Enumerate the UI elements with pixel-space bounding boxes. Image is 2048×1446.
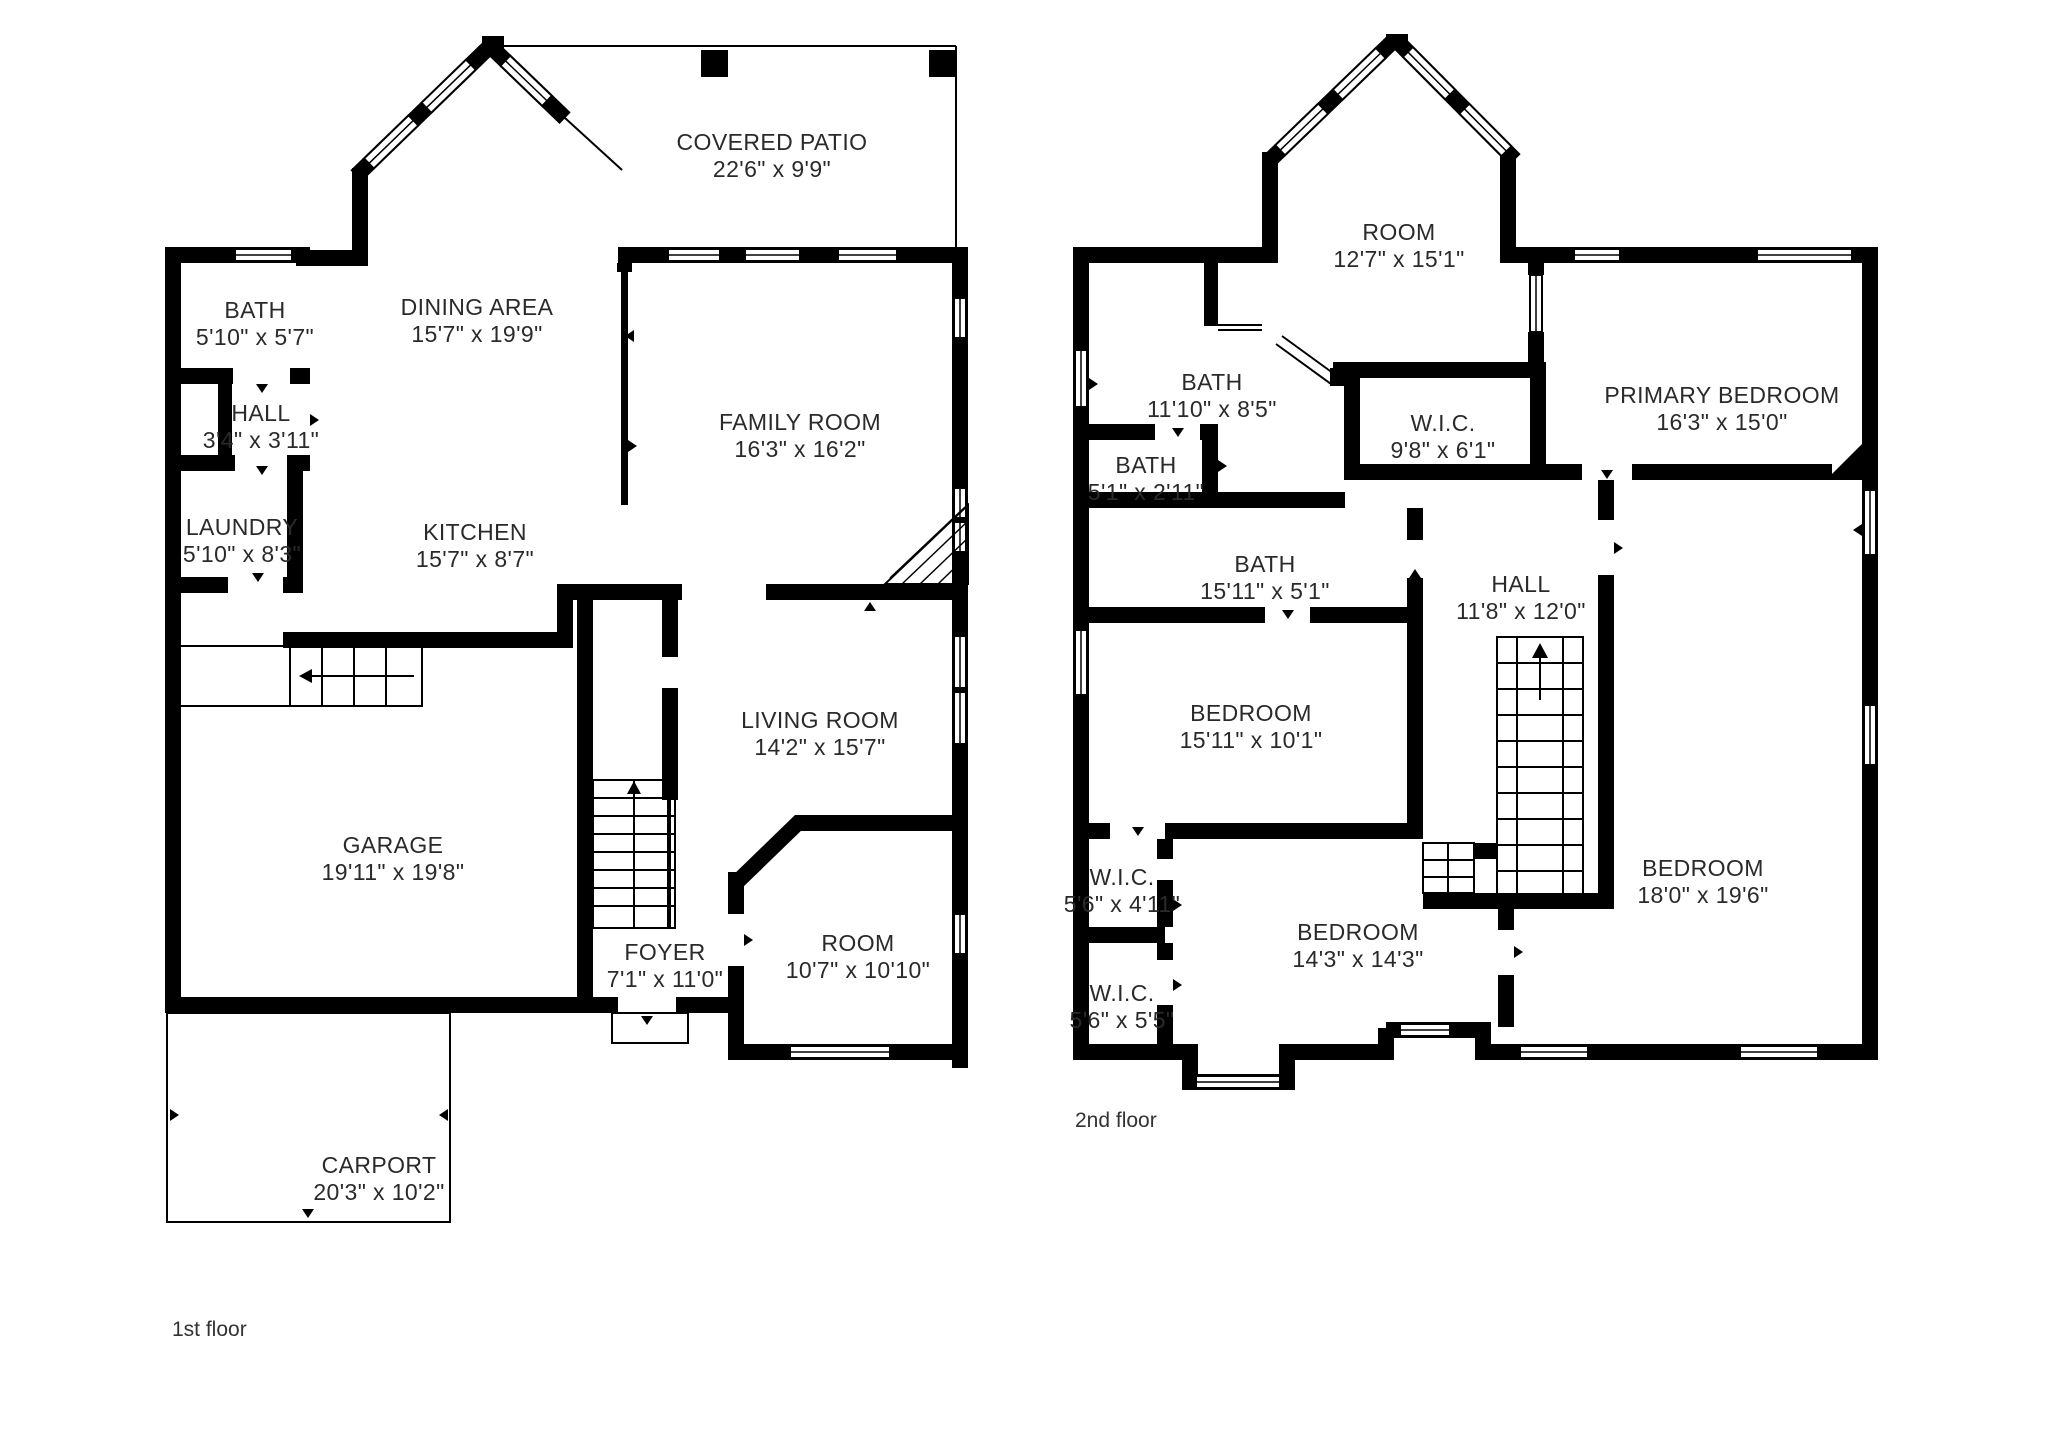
room-label-bedroom-2-name: BEDROOM [1297,919,1419,945]
stairs-second-floor [1423,637,1583,905]
room-label-living-room-name: LIVING ROOM [741,707,899,733]
room-label-family-room-name: FAMILY ROOM [719,409,881,435]
floor-caption-first: 1st floor [172,1318,247,1341]
floor-plan-first: 1st floor BATH5'10" x 5'7"HALL3'4" x 3'1… [165,36,968,1341]
door-ticks-first [170,330,876,1218]
room-label-foyer-name: FOYER [624,939,705,965]
bay-window-dining [350,36,570,182]
room-label-bedroom-3-name: BEDROOM [1642,855,1764,881]
stairs-first-floor [593,780,675,928]
room-label-bedroom-1-dims: 15'11" x 10'1" [1180,727,1323,753]
room-label-kitchen-dims: 15'7" x 8'7" [416,546,534,572]
room-label-dining-area-dims: 15'7" x 19'9" [411,321,542,347]
room-label-kitchen-name: KITCHEN [423,519,527,545]
room-labels-second: ROOM12'7" x 15'1"BATH11'10" x 8'5"BATH5'… [1064,219,1840,1033]
room-label-wic-3-name: W.I.C. [1089,980,1154,1006]
room-label-dining-area-name: DINING AREA [401,294,554,320]
room-label-garage-name: GARAGE [343,832,444,858]
room-label-bath-2-name: BATH [1181,369,1242,395]
room-label-hall-1-dims: 3'4" x 3'11" [203,427,319,453]
room-label-hall-2-dims: 11'8" x 12'0" [1456,598,1586,624]
room-label-foyer-dims: 7'1" x 11'0" [607,966,723,992]
room-label-wic-2-dims: 5'6" x 4'11" [1064,891,1180,917]
room-label-bath-2-dims: 11'10" x 8'5" [1147,396,1277,422]
room-label-wic-1-dims: 9'8" x 6'1" [1391,437,1496,463]
room-label-room-1-name: ROOM [821,930,894,956]
room-label-room-2-dims: 12'7" x 15'1" [1333,246,1464,272]
room-label-bath-4-name: BATH [1234,551,1295,577]
room-label-wic-3-dims: 5'6" x 5'5" [1070,1007,1175,1033]
patio-post-icon [701,50,728,77]
floor-plan-page: 1st floor BATH5'10" x 5'7"HALL3'4" x 3'1… [0,0,2048,1446]
floor-plan-second: 2nd floor ROOM12'7" x 15'1"BATH11'10" x … [1064,34,1878,1132]
room-label-laundry-dims: 5'10" x 8'3" [183,541,301,567]
room-label-bath-1-name: BATH [224,297,285,323]
room-label-bedroom-3-dims: 18'0" x 19'6" [1637,882,1768,908]
room-label-covered-patio-name: COVERED PATIO [677,129,868,155]
room-label-room-2-name: ROOM [1362,219,1435,245]
floor-caption-second: 2nd floor [1075,1109,1157,1132]
room-label-wic-1-name: W.I.C. [1410,410,1475,436]
room-label-bath-1-dims: 5'10" x 5'7" [196,324,314,350]
bay-window-room [1264,34,1520,166]
room-label-hall-2-name: HALL [1491,571,1550,597]
room-label-wic-2-name: W.I.C. [1089,864,1154,890]
room-label-garage-dims: 19'11" x 19'8" [322,859,465,885]
room-label-bedroom-1-name: BEDROOM [1190,700,1312,726]
understair-stairs-icon [180,646,422,706]
floor-plans-svg: 1st floor BATH5'10" x 5'7"HALL3'4" x 3'1… [0,0,2048,1446]
room-label-bath-4-dims: 15'11" x 5'1" [1200,578,1330,604]
room-label-carport-name: CARPORT [322,1152,437,1178]
room-label-room-1-dims: 10'7" x 10'10" [786,957,931,983]
room-label-primary-bedroom-dims: 16'3" x 15'0" [1656,409,1787,435]
room-label-bath-3-name: BATH [1115,452,1176,478]
diagonal-opening [1276,336,1337,384]
room-label-primary-bedroom-name: PRIMARY BEDROOM [1604,382,1839,408]
room-label-living-room-dims: 14'2" x 15'7" [754,734,885,760]
room-label-family-room-dims: 16'3" x 16'2" [734,436,865,462]
room-label-laundry-name: LAUNDRY [186,514,298,540]
room-label-bedroom-2-dims: 14'3" x 14'3" [1292,946,1423,972]
patio-post-icon [929,50,956,77]
room-labels-first: BATH5'10" x 5'7"HALL3'4" x 3'11"LAUNDRY5… [183,129,930,1205]
room-label-carport-dims: 20'3" x 10'2" [313,1179,444,1205]
room-label-hall-1-name: HALL [231,400,290,426]
room-label-covered-patio-dims: 22'6" x 9'9" [713,156,831,182]
room-label-bath-3-dims: 5'1" x 2'11" [1088,479,1204,505]
